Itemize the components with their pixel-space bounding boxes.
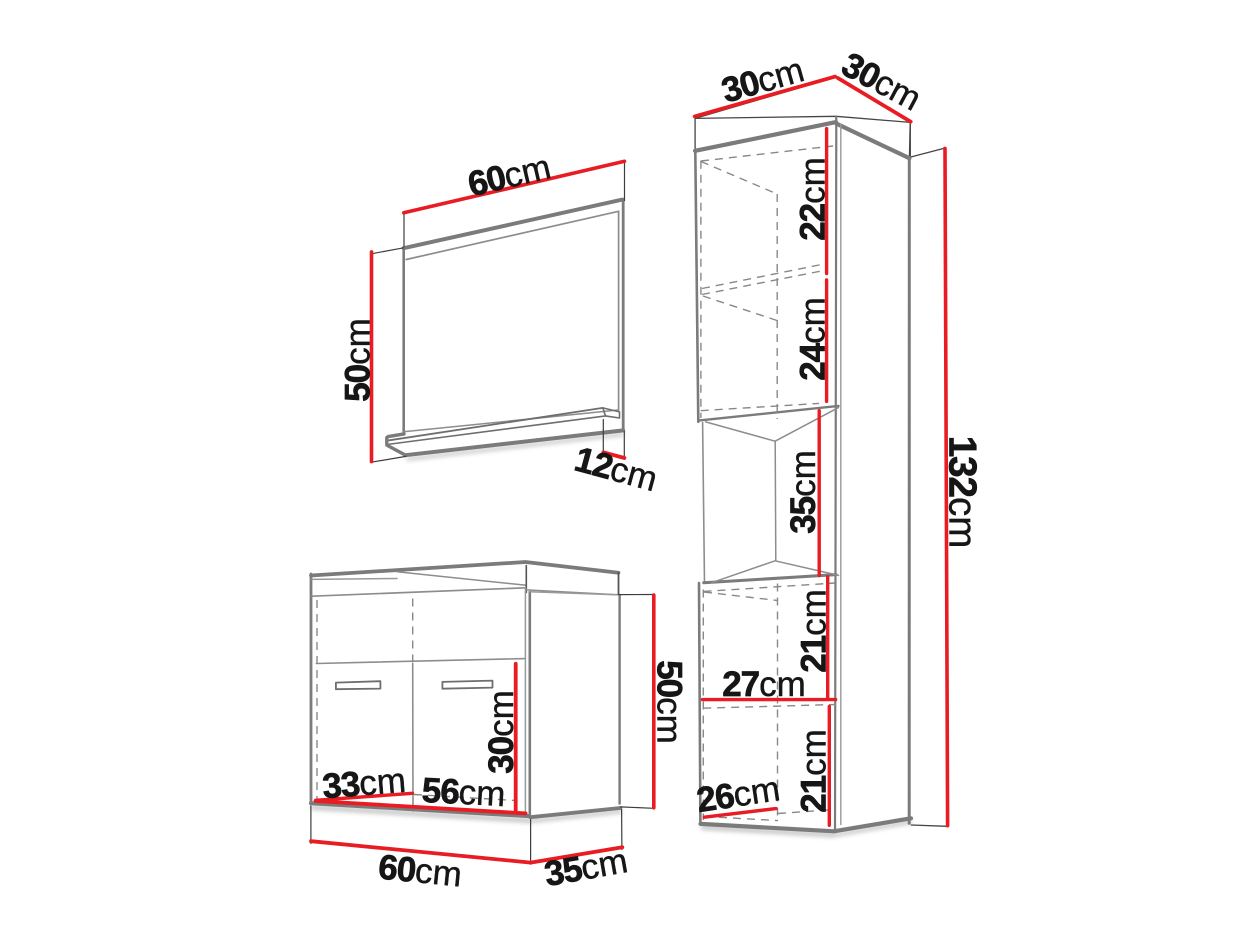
svg-text:21cm: 21cm [795, 589, 834, 673]
svg-text:50cm: 50cm [339, 318, 378, 402]
svg-text:132cm: 132cm [941, 436, 984, 549]
svg-text:30cm: 30cm [482, 690, 521, 774]
svg-text:50cm: 50cm [650, 660, 689, 744]
svg-text:21cm: 21cm [795, 729, 834, 813]
svg-text:27cm: 27cm [722, 665, 806, 704]
svg-text:33cm: 33cm [321, 761, 407, 806]
svg-text:35cm: 35cm [784, 450, 823, 534]
svg-text:24cm: 24cm [794, 297, 833, 381]
svg-text:56cm: 56cm [421, 771, 507, 814]
svg-text:22cm: 22cm [794, 157, 833, 241]
svg-text:60cm: 60cm [377, 848, 464, 895]
